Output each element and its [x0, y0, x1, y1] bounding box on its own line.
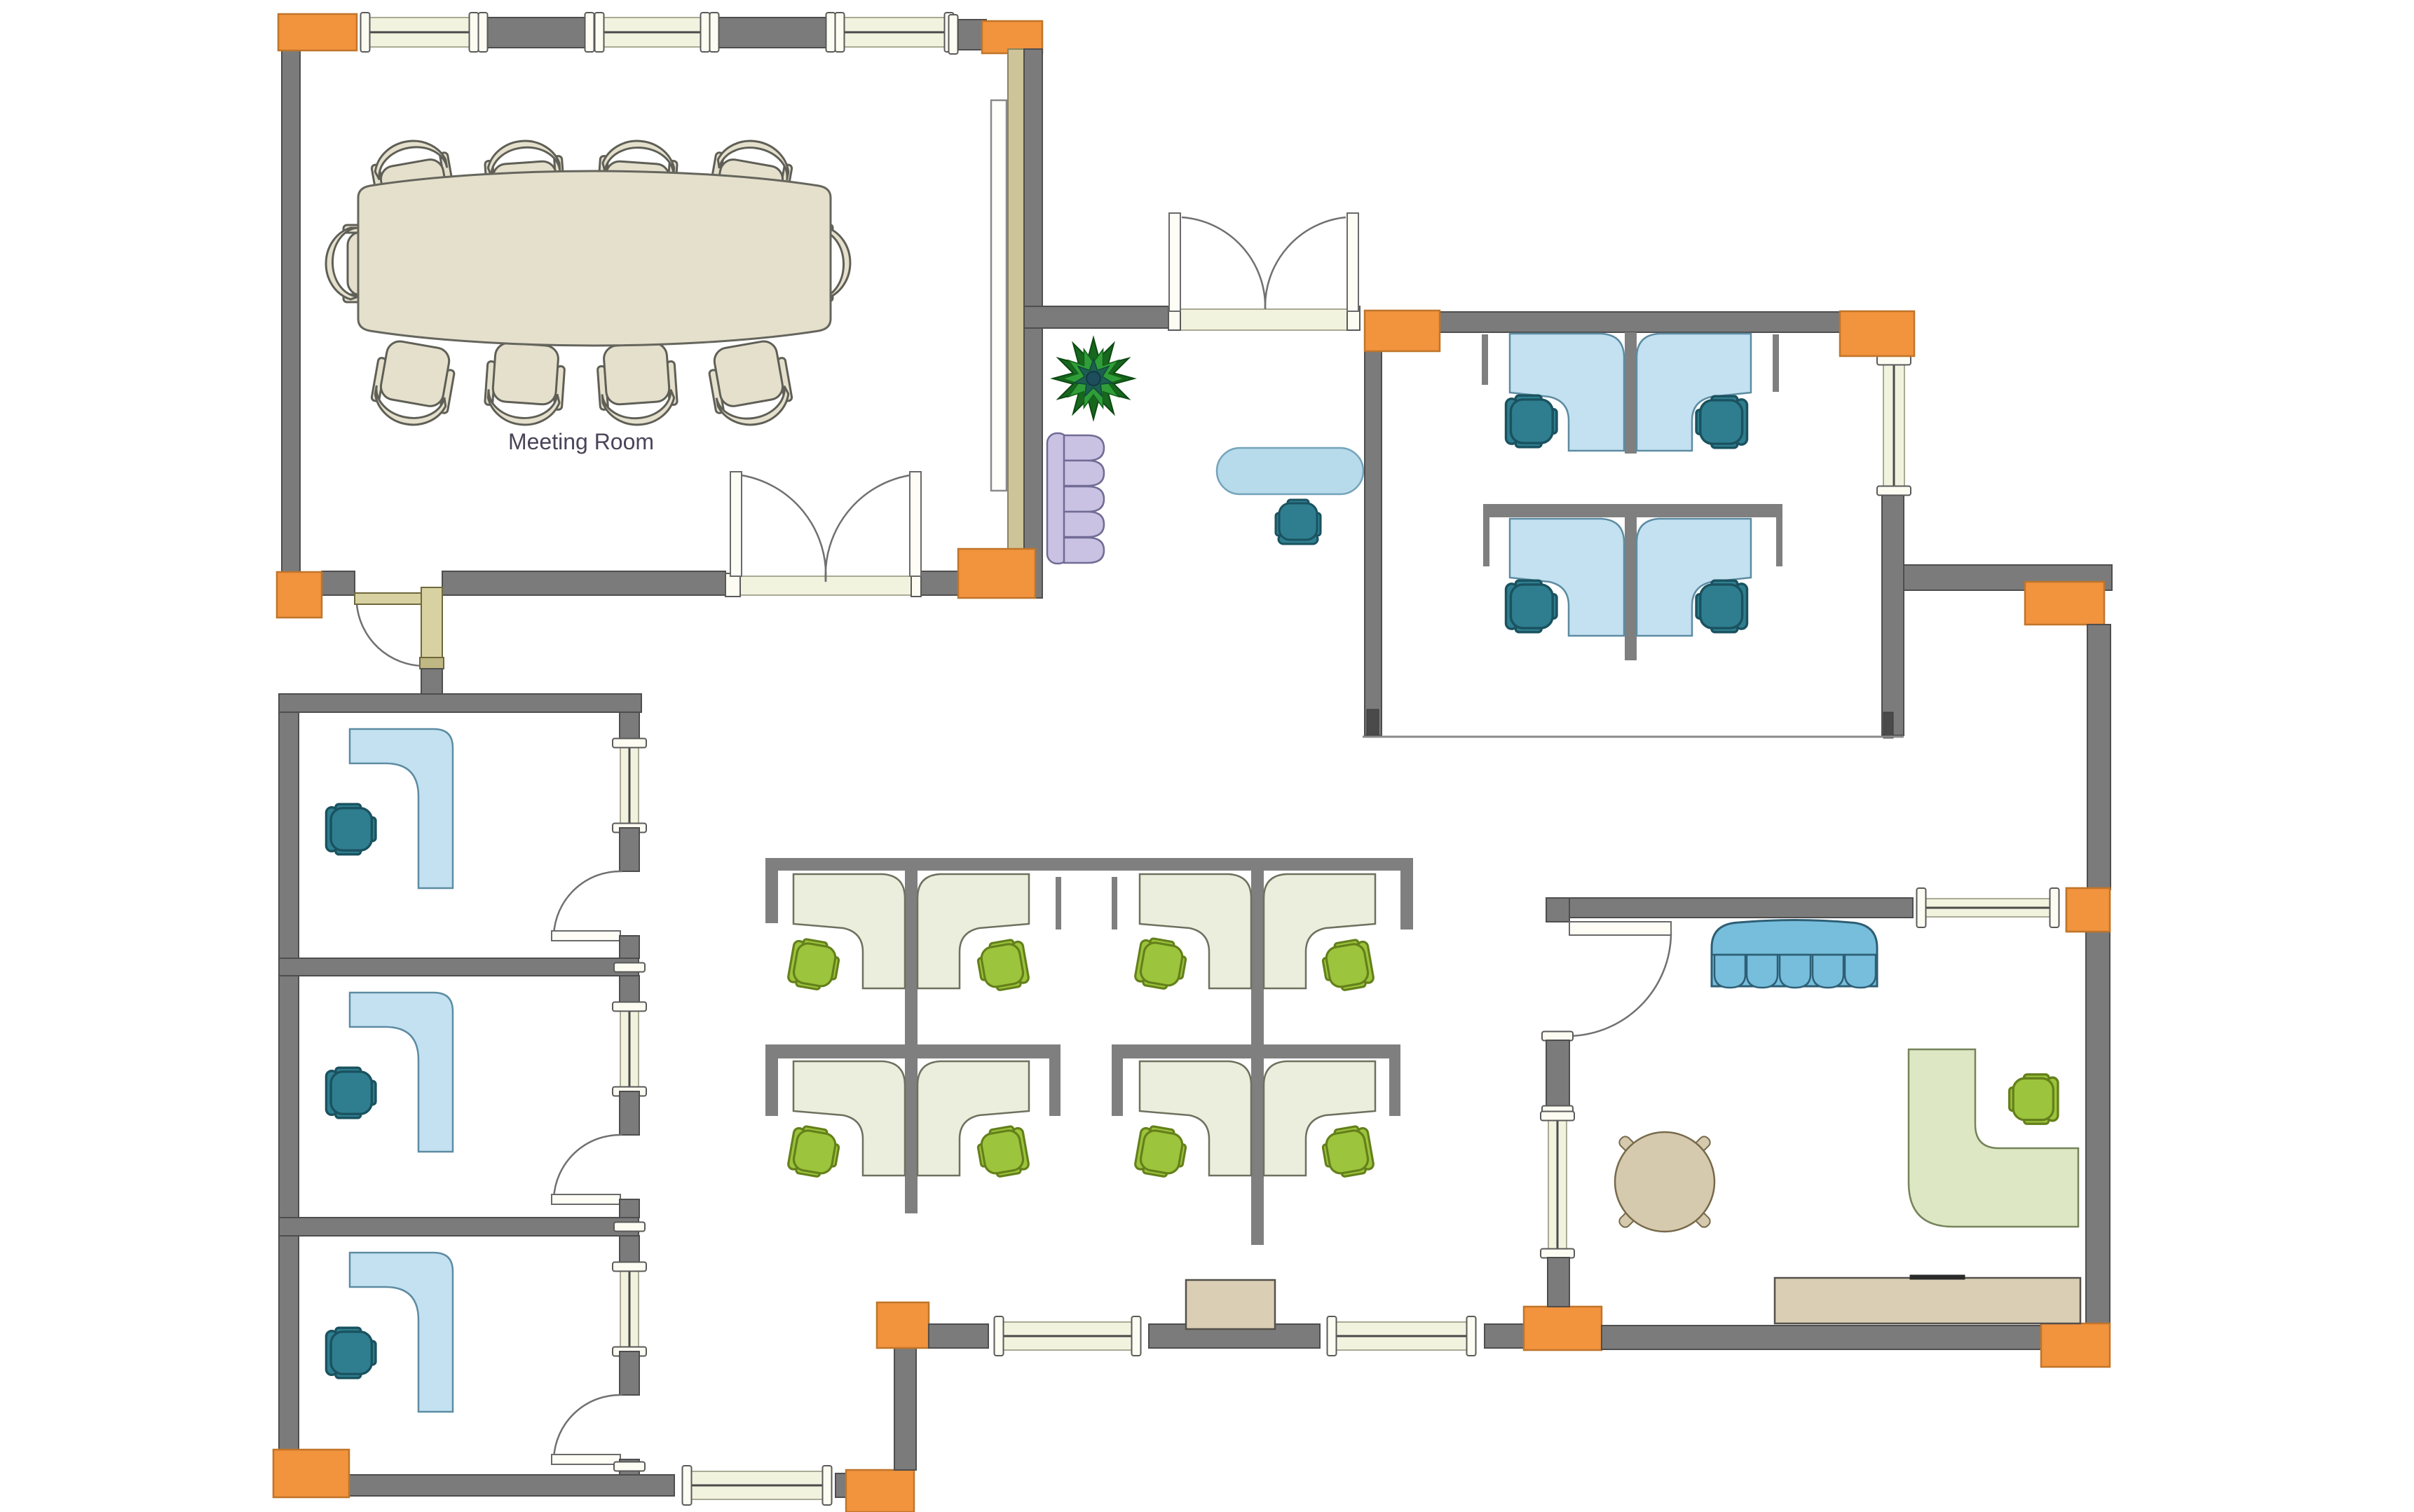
svg-text:Meeting Room: Meeting Room — [508, 429, 654, 454]
